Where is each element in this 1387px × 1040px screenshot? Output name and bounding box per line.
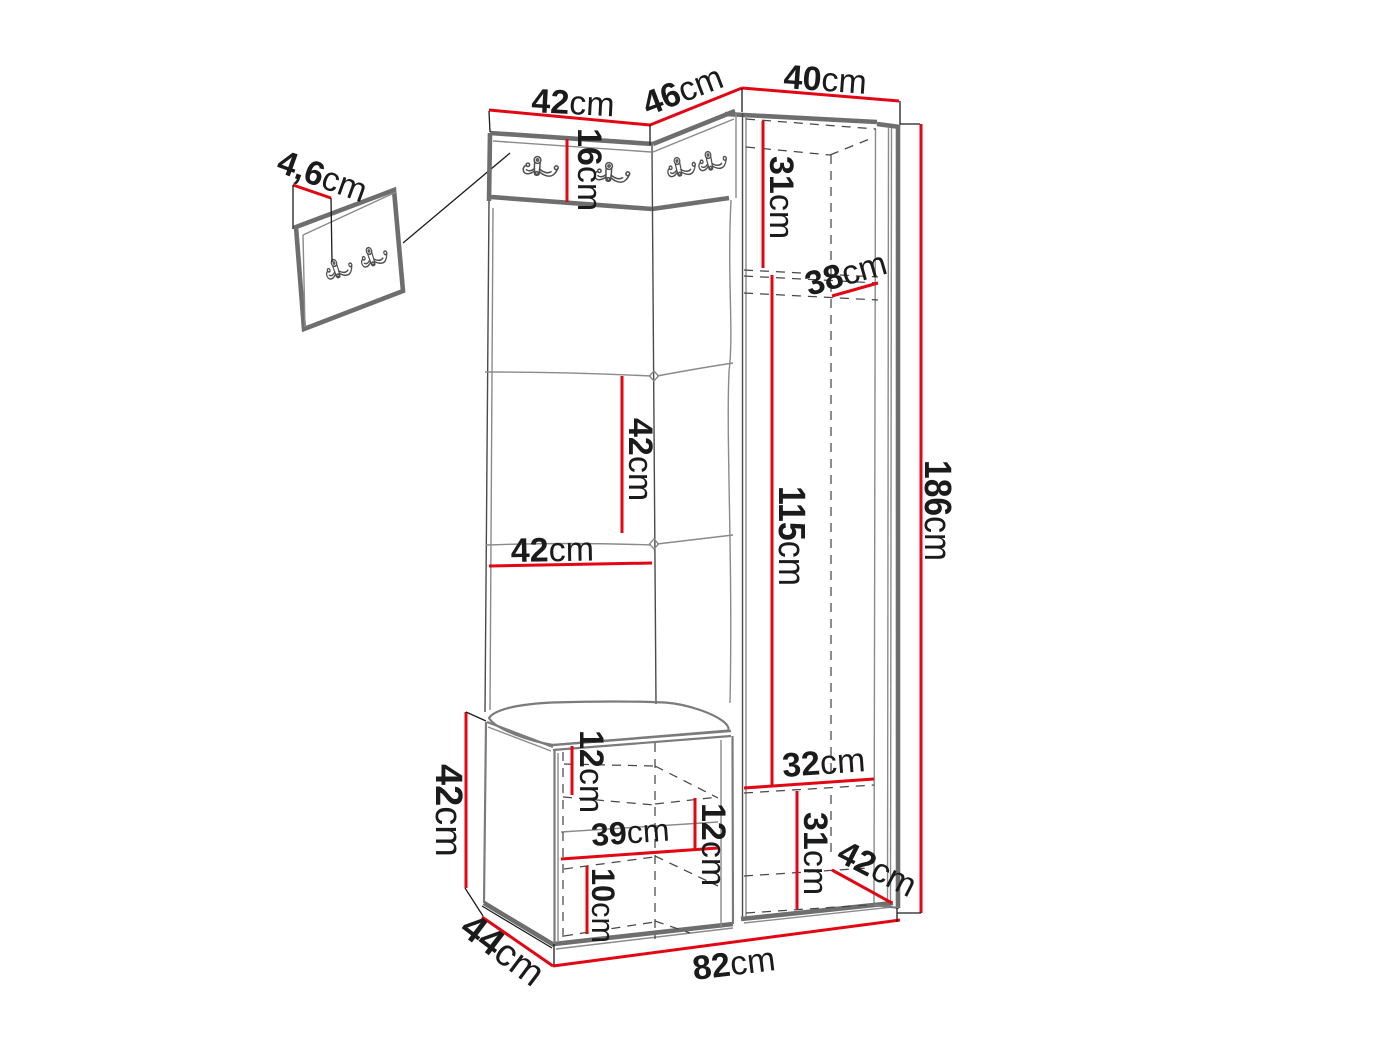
svg-text:10cm: 10cm: [585, 868, 621, 943]
svg-text:40cm: 40cm: [782, 58, 868, 102]
svg-text:42cm: 42cm: [531, 82, 616, 124]
svg-text:42cm: 42cm: [427, 764, 469, 857]
svg-text:186cm: 186cm: [916, 460, 958, 561]
svg-text:115cm: 115cm: [770, 486, 812, 586]
svg-text:31cm: 31cm: [762, 156, 800, 239]
svg-text:12cm: 12cm: [694, 803, 732, 886]
svg-text:39cm: 39cm: [590, 812, 671, 853]
svg-text:42cm: 42cm: [510, 531, 594, 570]
svg-text:31cm: 31cm: [796, 812, 834, 895]
svg-text:12cm: 12cm: [572, 730, 610, 813]
svg-text:42cm: 42cm: [621, 418, 659, 501]
svg-text:32cm: 32cm: [781, 741, 867, 785]
svg-text:16cm: 16cm: [570, 128, 608, 211]
